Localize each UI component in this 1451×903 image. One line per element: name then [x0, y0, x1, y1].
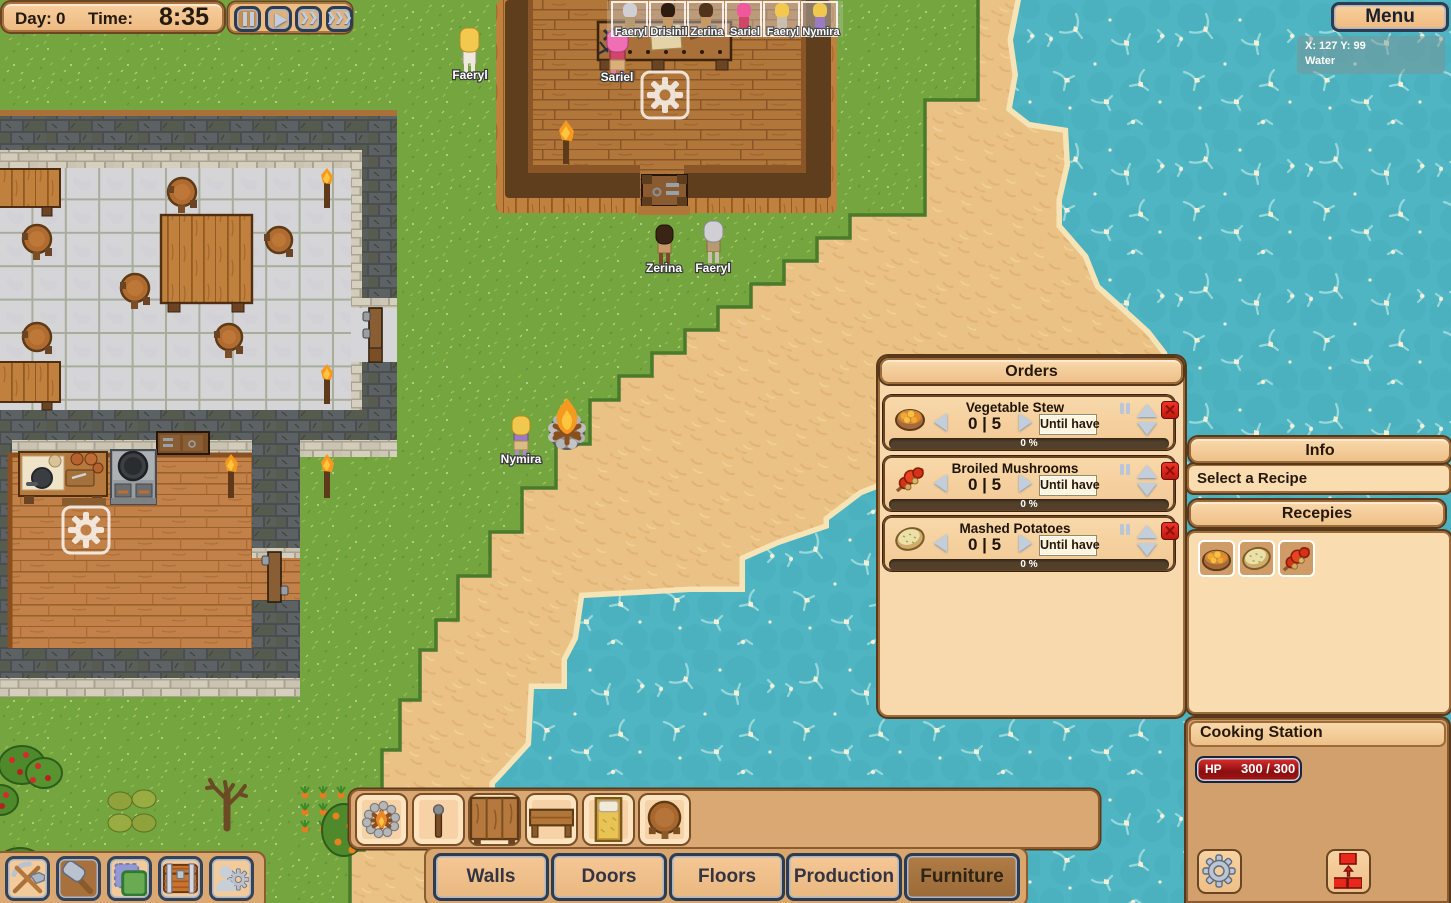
- svg-text:Sariel: Sariel: [601, 70, 634, 84]
- svg-text:Zerina: Zerina: [690, 26, 724, 38]
- svg-text:Faeryl: Faeryl: [615, 26, 647, 38]
- svg-text:Faeryl: Faeryl: [695, 261, 730, 275]
- svg-text:Zerina: Zerina: [646, 261, 682, 275]
- svg-text:Nymira: Nymira: [802, 26, 840, 38]
- svg-text:Faeryl: Faeryl: [767, 26, 799, 38]
- svg-text:Sariel: Sariel: [730, 26, 760, 38]
- svg-text:Drisinil: Drisinil: [650, 26, 687, 38]
- svg-text:Faeryl: Faeryl: [452, 68, 487, 82]
- svg-text:Nymira: Nymira: [501, 452, 542, 466]
